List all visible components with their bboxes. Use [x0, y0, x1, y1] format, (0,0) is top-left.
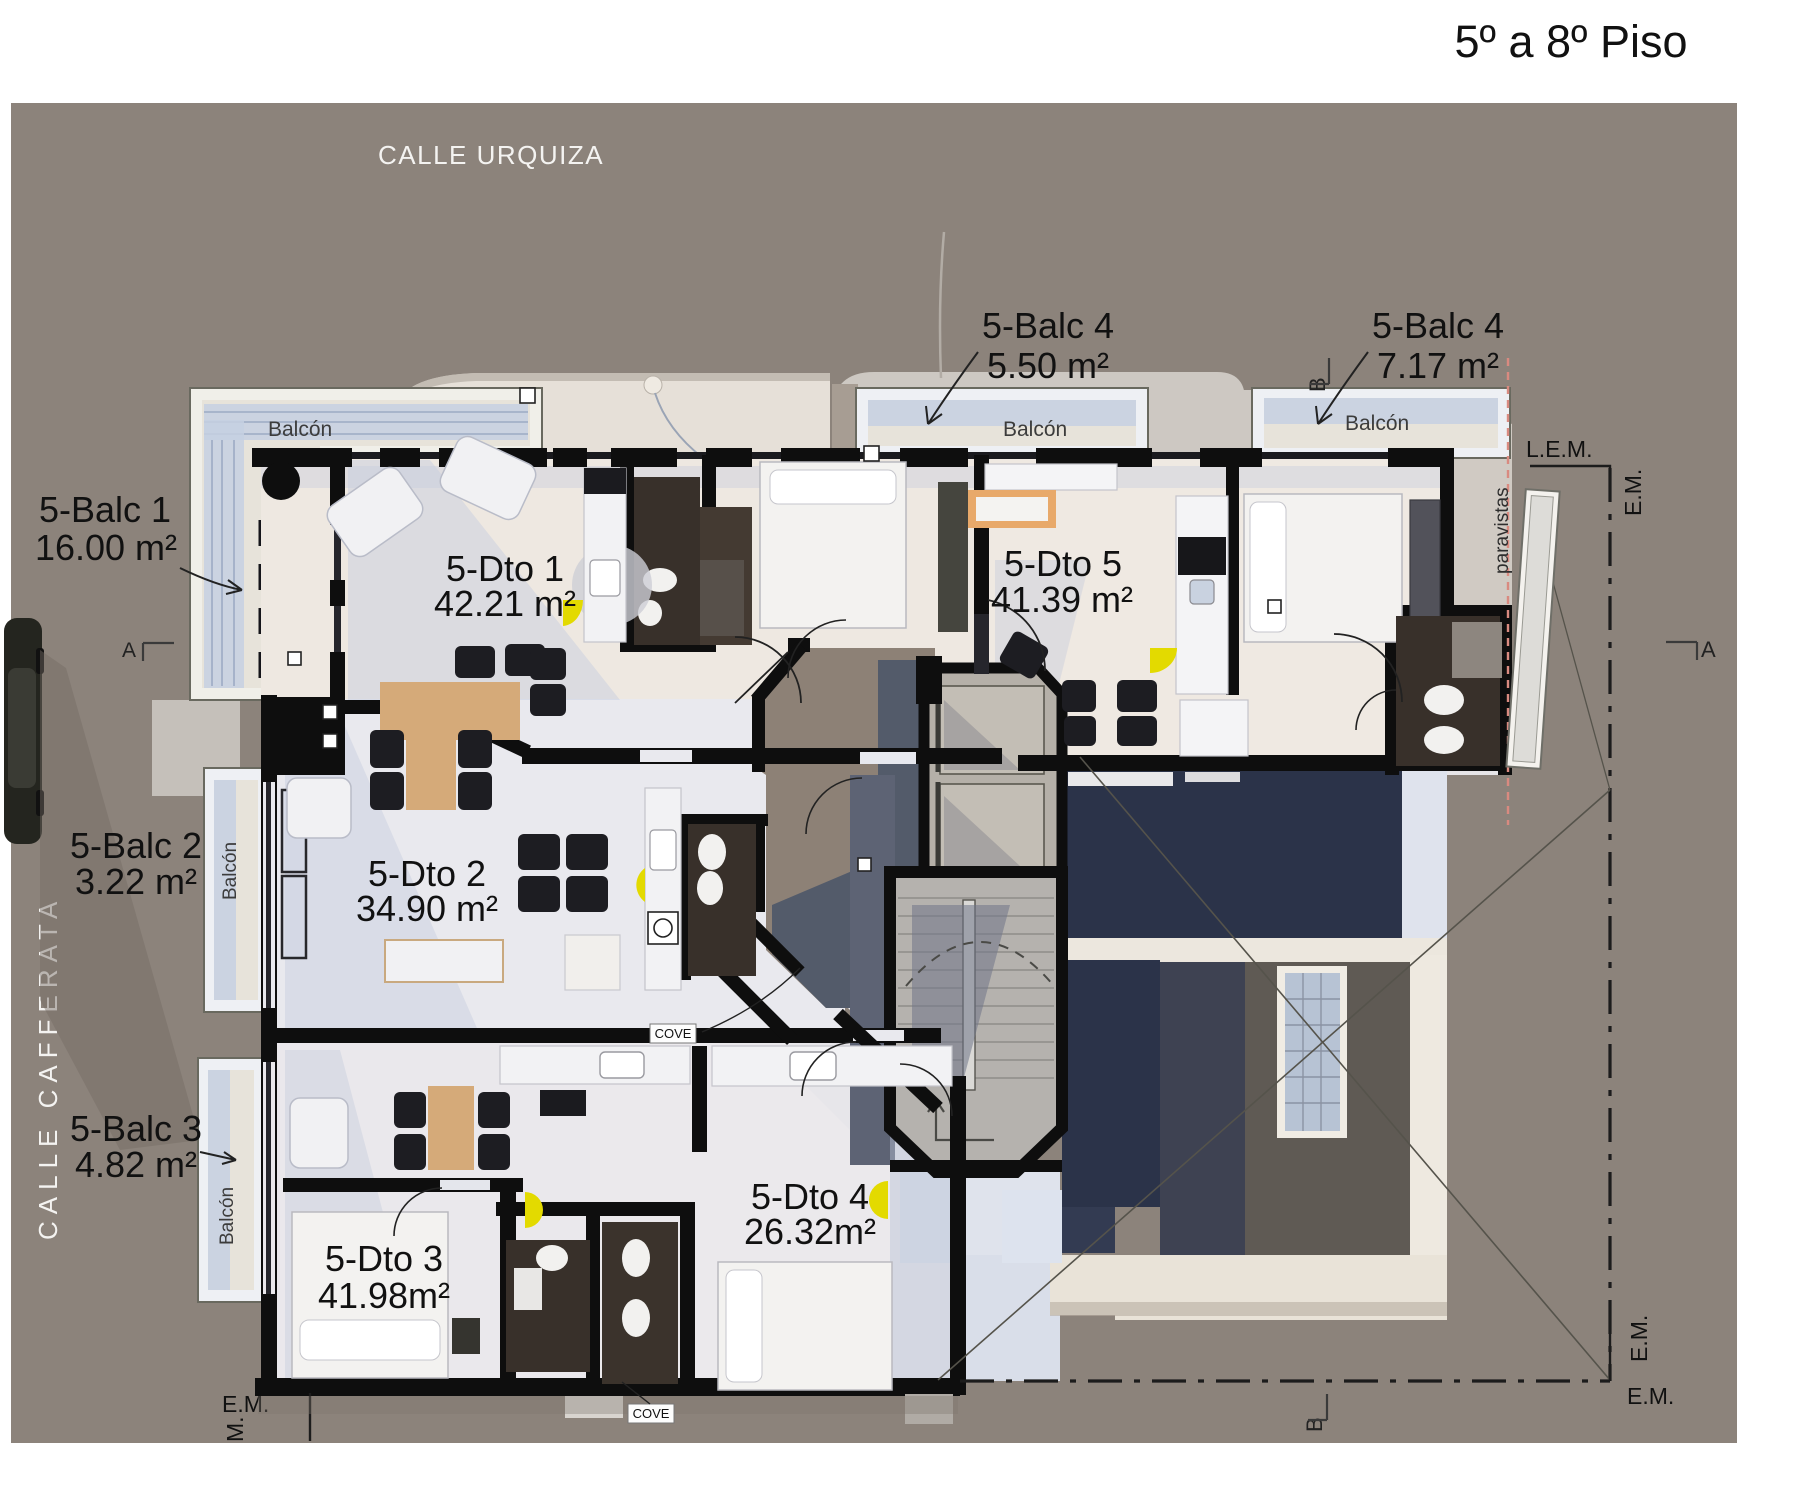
svg-text:5.50 m²: 5.50 m²	[987, 345, 1109, 386]
svg-text:3.22 m²: 3.22 m²	[75, 861, 197, 902]
svg-text:COVE: COVE	[655, 1026, 692, 1041]
svg-text:L.E.M.: L.E.M.	[1526, 436, 1592, 462]
svg-text:Balcón: Balcón	[1345, 412, 1409, 435]
svg-text:5º a 8º Piso: 5º a 8º Piso	[1455, 16, 1688, 67]
svg-text:paravistas: paravistas	[1492, 487, 1513, 574]
svg-text:5-Balc 4: 5-Balc 4	[982, 305, 1114, 346]
svg-text:41.39 m²: 41.39 m²	[991, 579, 1133, 620]
svg-text:E.M.: E.M.	[1627, 1383, 1674, 1409]
svg-text:E.M.: E.M.	[1620, 469, 1646, 516]
svg-text:34.90 m²: 34.90 m²	[356, 888, 498, 929]
svg-text:26.32m²: 26.32m²	[744, 1211, 876, 1252]
svg-text:CALLE URQUIZA: CALLE URQUIZA	[378, 140, 604, 170]
svg-text:4.82 m²: 4.82 m²	[75, 1144, 197, 1185]
svg-text:5-Dto 3: 5-Dto 3	[325, 1238, 443, 1279]
svg-text:Balcón: Balcón	[220, 842, 241, 900]
svg-text:7.17 m²: 7.17 m²	[1377, 345, 1499, 386]
svg-text:Balcón: Balcón	[217, 1187, 238, 1245]
svg-text:E.M.: E.M.	[1626, 1315, 1652, 1362]
svg-text:M.: M.	[222, 1416, 248, 1442]
svg-text:Balcón: Balcón	[268, 418, 332, 441]
svg-text:A: A	[1701, 637, 1716, 662]
svg-text:5-Dto 5: 5-Dto 5	[1004, 543, 1122, 584]
svg-text:5-Balc 3: 5-Balc 3	[70, 1108, 202, 1149]
svg-text:42.21 m²: 42.21 m²	[434, 583, 576, 624]
svg-text:COVE: COVE	[633, 1406, 670, 1421]
svg-text:5-Balc 2: 5-Balc 2	[70, 825, 202, 866]
svg-text:Balcón: Balcón	[1003, 418, 1067, 441]
svg-text:A: A	[122, 639, 136, 662]
svg-text:5-Balc 4: 5-Balc 4	[1372, 305, 1504, 346]
svg-text:16.00 m²: 16.00 m²	[35, 527, 177, 568]
svg-text:41.98m²: 41.98m²	[318, 1275, 450, 1316]
svg-text:5-Balc 1: 5-Balc 1	[39, 489, 171, 530]
